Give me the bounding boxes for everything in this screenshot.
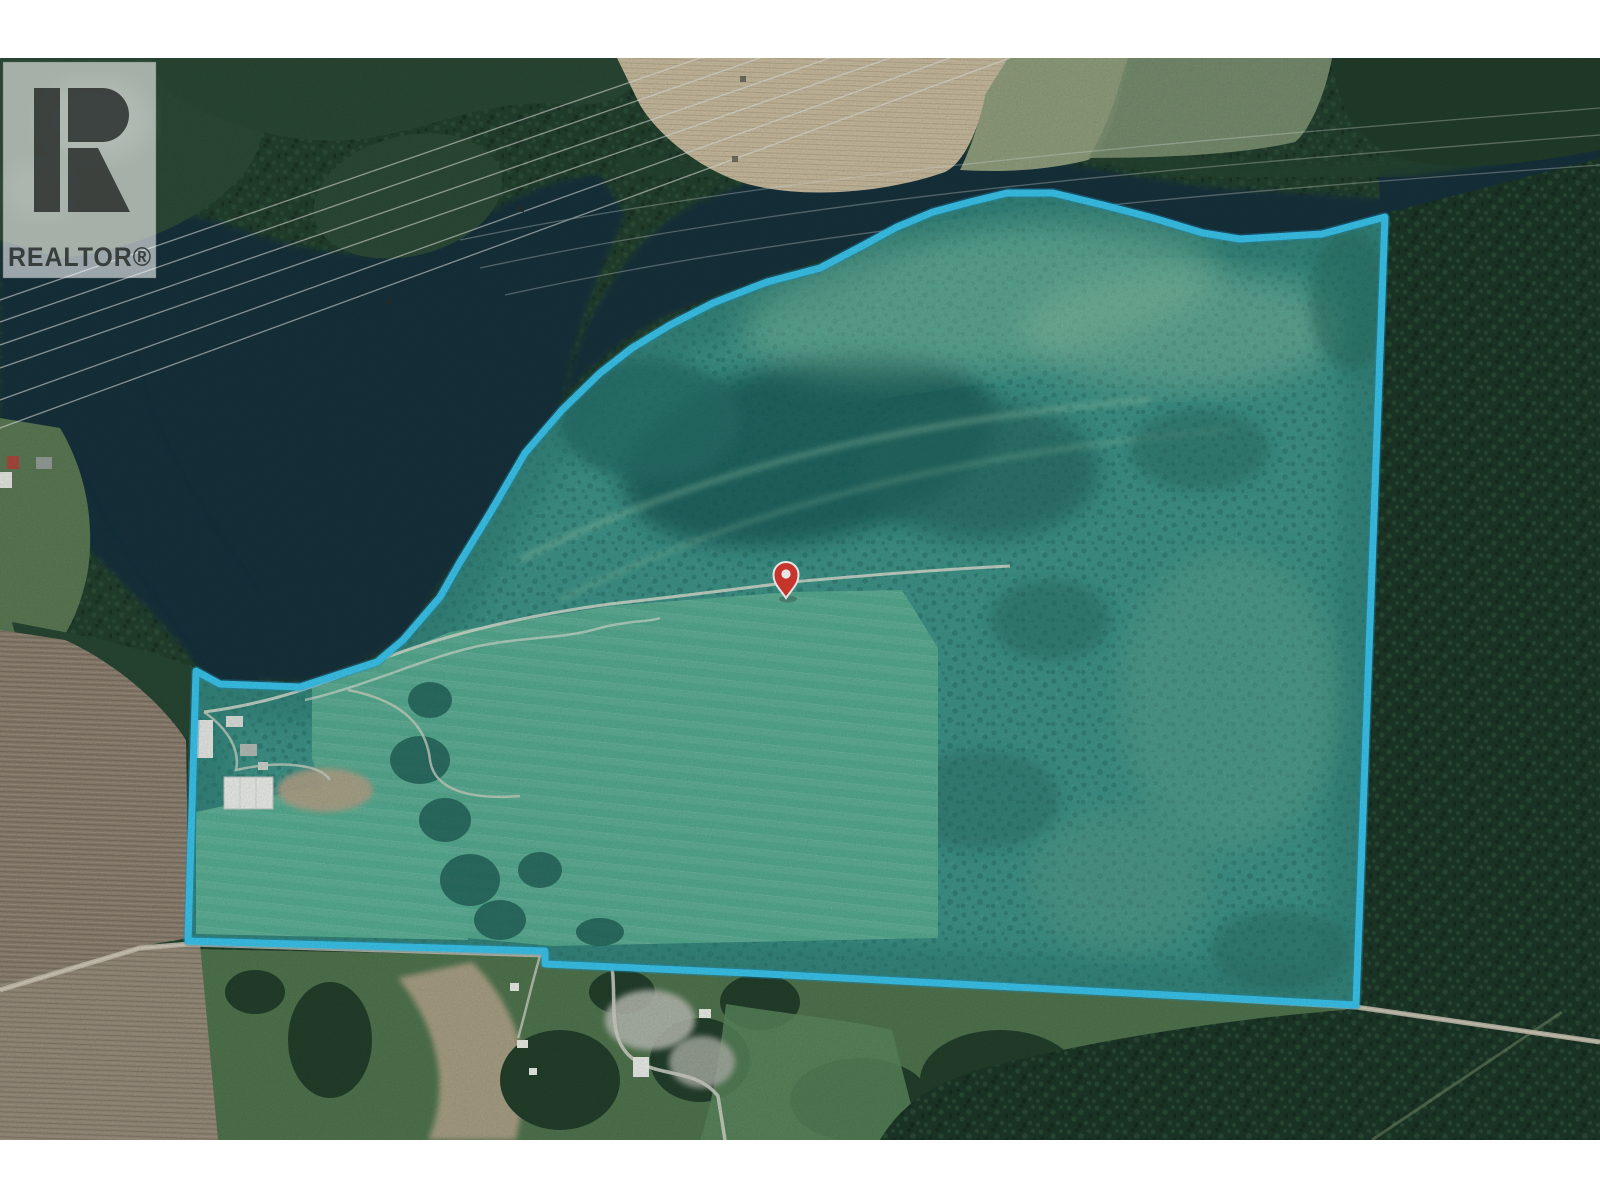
letterbox-top xyxy=(0,0,1600,58)
listing-photo: REALTOR® xyxy=(0,0,1600,1200)
realtor-watermark: REALTOR® xyxy=(3,62,156,278)
letterbox-bottom xyxy=(0,1140,1600,1200)
satellite-map: REALTOR® xyxy=(0,0,1600,1200)
realtor-wordmark: REALTOR® xyxy=(8,242,152,272)
photo-grain xyxy=(0,58,1600,1140)
